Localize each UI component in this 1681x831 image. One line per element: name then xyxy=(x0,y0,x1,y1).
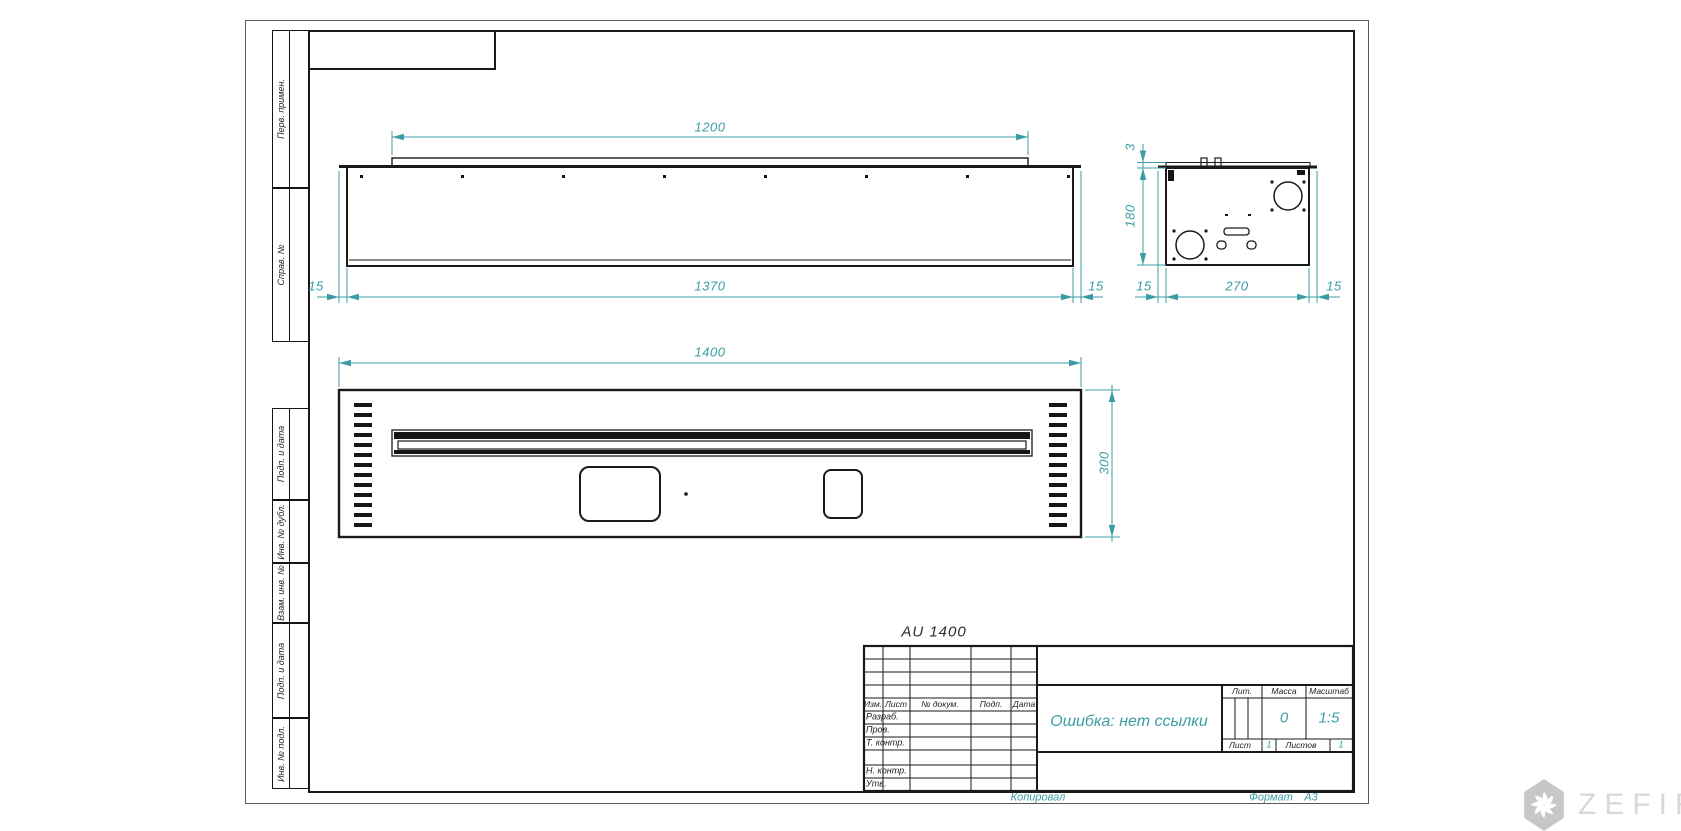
tb-massa-value: 0 xyxy=(1280,711,1288,726)
dimension-lines xyxy=(317,131,1340,542)
dim-side-height: 180 xyxy=(1124,204,1137,227)
dim-side-left: 15 xyxy=(1136,280,1151,293)
tb-header-podp: Подп. xyxy=(980,700,1003,709)
drawing-designation: AU 1400 xyxy=(901,625,966,640)
copied-label: Копировал xyxy=(1011,793,1066,804)
tb-list-label: Лист xyxy=(1229,741,1251,750)
zefire-brand-text: ZEFIRE xyxy=(1578,788,1681,822)
drawing-sheet-page: Перв. примен. Справ. № Подп. и дата Инв.… xyxy=(0,0,1681,831)
tb-masshtab-label: Масштаб xyxy=(1309,687,1349,696)
dim-side-lip: 3 xyxy=(1124,143,1137,151)
tb-document-name: Ошибка: нет ссылки xyxy=(1050,714,1208,730)
dim-top-right: 15 xyxy=(1088,280,1103,293)
format-label: Формат xyxy=(1249,793,1293,804)
tb-header-izm: Изм. xyxy=(864,700,882,709)
tb-listov-value: 1 xyxy=(1338,741,1343,750)
dim-top-lip: 1200 xyxy=(695,121,726,134)
tb-lit-label: Лит. xyxy=(1232,687,1252,696)
tb-listov-label: Листов xyxy=(1286,741,1317,750)
front-view-right-vents xyxy=(1049,403,1067,527)
dimension-arrows xyxy=(327,134,1329,537)
front-view-geometry xyxy=(339,390,1081,537)
tb-header-data: Дата xyxy=(1013,700,1035,709)
top-view-screw-holes xyxy=(360,175,1072,178)
dim-top-left: 15 xyxy=(308,280,323,293)
drawing-linework xyxy=(0,0,1681,831)
tb-header-doc: № докум. xyxy=(921,700,958,709)
tb-row-prov: Пров. xyxy=(866,726,890,735)
tb-masshtab-value: 1:5 xyxy=(1319,711,1340,726)
tb-row-utv: Утв. xyxy=(866,780,886,789)
dim-top-body: 1370 xyxy=(695,280,726,293)
tb-row-nkontr: Н. контр. xyxy=(866,767,907,776)
tb-header-list: Лист xyxy=(885,700,907,709)
front-view-left-vents xyxy=(354,403,372,527)
dim-side-right: 15 xyxy=(1326,280,1341,293)
dim-side-width: 270 xyxy=(1225,280,1248,293)
tb-list-value: 1 xyxy=(1266,741,1271,750)
format-value: А3 xyxy=(1304,793,1317,804)
tb-row-tkontr: Т. контр. xyxy=(866,739,905,748)
tb-massa-label: Масса xyxy=(1271,687,1296,696)
side-view-geometry xyxy=(1158,158,1317,265)
dim-front-width: 1400 xyxy=(695,346,726,359)
dim-front-height: 300 xyxy=(1098,451,1111,474)
tb-row-razrab: Разраб. xyxy=(866,713,899,722)
